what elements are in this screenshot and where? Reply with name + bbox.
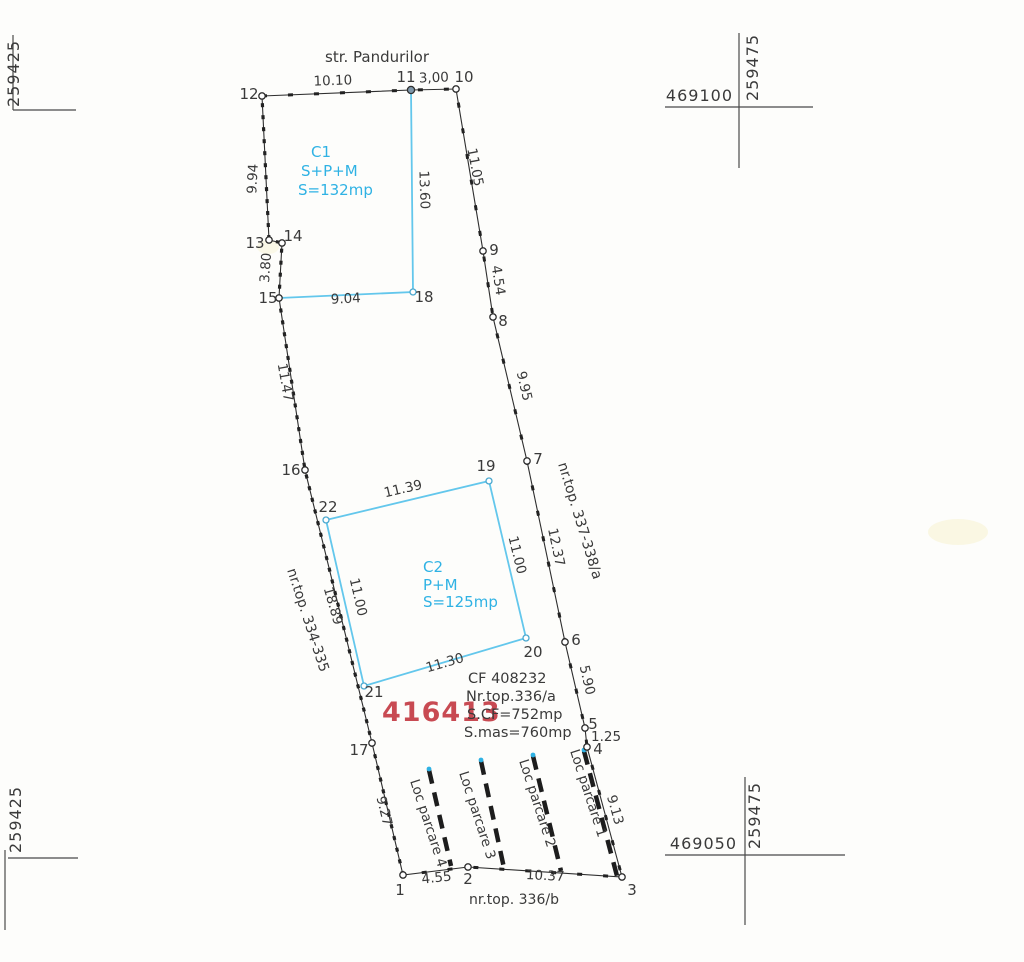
point-label-9: 9	[489, 241, 499, 259]
building-c1-area: S=132mp	[298, 181, 373, 199]
point-marker-6	[562, 639, 568, 645]
parcel-info-block: 416413 CF 408232 Nr.top.336/a S.CF=752mp…	[382, 671, 572, 741]
dim-12-13: 9.94	[244, 163, 262, 194]
grid-label-easting-top-right: 259475	[743, 34, 762, 101]
point-label-13: 13	[245, 234, 264, 252]
dim-17-1: 9.27	[372, 795, 395, 828]
building-c2-regime: P+M	[423, 576, 458, 594]
point-label-15: 15	[258, 289, 277, 307]
point-label-17: 17	[349, 741, 368, 759]
point-marker-11	[407, 86, 414, 93]
point-label-8: 8	[498, 312, 508, 330]
dim-15-18: 9.04	[330, 290, 361, 308]
point-label-11: 11	[396, 68, 415, 86]
parcel-nrtop: Nr.top.336/a	[466, 689, 556, 705]
dim-8-7: 9.95	[513, 370, 535, 403]
point-label-10: 10	[454, 68, 473, 86]
dim-1-2: 4.55	[421, 868, 453, 887]
grid-cross-bottom-left	[5, 850, 78, 930]
parcel-scf: S.CF=752mp	[467, 707, 562, 723]
survey-plan-drawing: 259425 469100 259475 259425 469050 25947…	[0, 0, 1024, 962]
dim-20-21: 11.30	[424, 650, 466, 676]
point-label-18: 18	[414, 288, 433, 306]
point-marker-4	[584, 744, 590, 750]
dim-9-8: 4.54	[488, 264, 509, 296]
building-c1-name: C1	[311, 143, 331, 161]
point-marker-1	[400, 872, 406, 878]
point-label-21: 21	[364, 683, 383, 701]
point-marker-3	[619, 874, 625, 880]
grid-label-easting-bottom-left: 259425	[6, 786, 25, 853]
point-label-22: 22	[318, 498, 337, 516]
parcel-smas: S.mas=760mp	[464, 725, 572, 741]
scan-artifact-blob	[928, 519, 988, 545]
point-marker-8	[490, 314, 496, 320]
point-label-6: 6	[571, 631, 581, 649]
dim-19-20: 11.00	[504, 534, 529, 575]
point-label-1: 1	[395, 881, 405, 899]
point-marker-22	[323, 517, 329, 523]
building-c2-labels: C2 P+M S=125mp	[423, 558, 498, 611]
street-name-label: str. Pandurilor	[325, 48, 430, 66]
grid-label-easting-bottom-right: 259475	[745, 782, 764, 849]
grid-label-northing-bottom-right: 469050	[670, 834, 737, 853]
dim-15-16: 11.47	[274, 362, 296, 403]
dim-11-10: 3,00	[419, 69, 450, 86]
point-label-3: 3	[627, 881, 637, 899]
point-marker-7	[524, 458, 530, 464]
dim-12-11: 10.10	[313, 72, 352, 89]
building-point-markers	[323, 289, 529, 689]
point-label-16: 16	[281, 461, 300, 479]
building-c2-name: C2	[423, 558, 443, 576]
point-marker-9	[480, 248, 486, 254]
point-label-2: 2	[463, 870, 473, 888]
parking-label-2: Loc parcare 2	[515, 757, 558, 849]
dim-11-18: 13.60	[415, 170, 432, 209]
dim-14-15: 3.80	[257, 252, 275, 283]
dim-5-4: 1.25	[591, 729, 621, 745]
point-marker-19	[486, 478, 492, 484]
building-c1-regime: S+P+M	[301, 162, 358, 180]
point-label-19: 19	[476, 457, 495, 475]
dim-6-5: 5.90	[576, 664, 598, 697]
point-marker-13	[266, 237, 272, 243]
survey-plan-sheet: 259425 469100 259475 259425 469050 25947…	[0, 0, 1024, 962]
parking-line-tips	[427, 748, 587, 772]
dim-21-22: 11.00	[346, 576, 370, 617]
dim-2-3: 10.37	[525, 867, 564, 885]
point-marker-10	[453, 86, 459, 92]
parking-labels: Loc parcare 1 Loc parcare 2 Loc parcare …	[406, 747, 609, 869]
point-marker-20	[523, 635, 529, 641]
point-label-7: 7	[533, 450, 543, 468]
point-marker-16	[302, 467, 308, 473]
dim-10-9: 11.05	[463, 147, 486, 188]
point-label-20: 20	[523, 643, 542, 661]
grid-label-easting-top-left: 259425	[4, 40, 23, 107]
point-label-12: 12	[239, 85, 258, 103]
building-c2-area: S=125mp	[423, 593, 498, 611]
point-marker-17	[369, 740, 375, 746]
parcel-cf: CF 408232	[468, 671, 546, 687]
grid-label-northing-top-right: 469100	[666, 86, 733, 105]
building-c1-labels: C1 S+P+M S=132mp	[298, 143, 373, 199]
point-label-14: 14	[283, 227, 302, 245]
neighbor-bottom-label: nr.top. 336/b	[469, 892, 559, 908]
neighbor-left-label: nr.top. 334-335	[283, 566, 332, 674]
point-marker-12	[259, 93, 265, 99]
